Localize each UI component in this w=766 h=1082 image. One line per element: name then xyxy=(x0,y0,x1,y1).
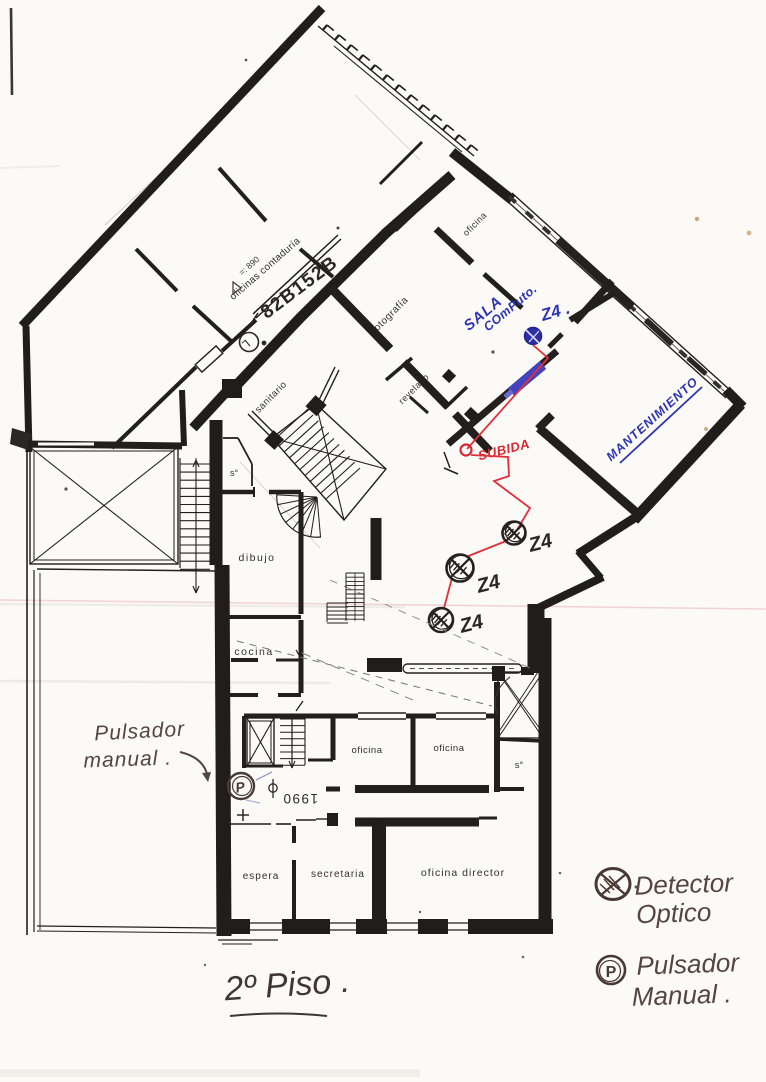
svg-text:Pulsador: Pulsador xyxy=(94,718,186,746)
svg-text:1990: 1990 xyxy=(282,791,318,806)
svg-text:Pulsador: Pulsador xyxy=(636,947,741,981)
svg-text:dibujo: dibujo xyxy=(238,552,275,564)
svg-text:oficina director: oficina director xyxy=(421,867,505,879)
svg-text:Detector: Detector xyxy=(634,867,735,900)
svg-text:Manual .: Manual . xyxy=(631,978,732,1011)
svg-text:espera: espera xyxy=(243,871,280,882)
svg-text:secretaria: secretaria xyxy=(311,869,365,880)
svg-text:oficina: oficina xyxy=(352,745,383,756)
svg-text:manual .: manual . xyxy=(83,746,172,772)
svg-text:s°: s° xyxy=(515,760,524,771)
svg-text:cocina: cocina xyxy=(234,646,273,658)
svg-text:oficina: oficina xyxy=(434,743,465,754)
svg-text:P: P xyxy=(606,964,617,981)
svg-text:s°: s° xyxy=(230,468,239,478)
svg-text:Optico: Optico xyxy=(636,897,712,930)
